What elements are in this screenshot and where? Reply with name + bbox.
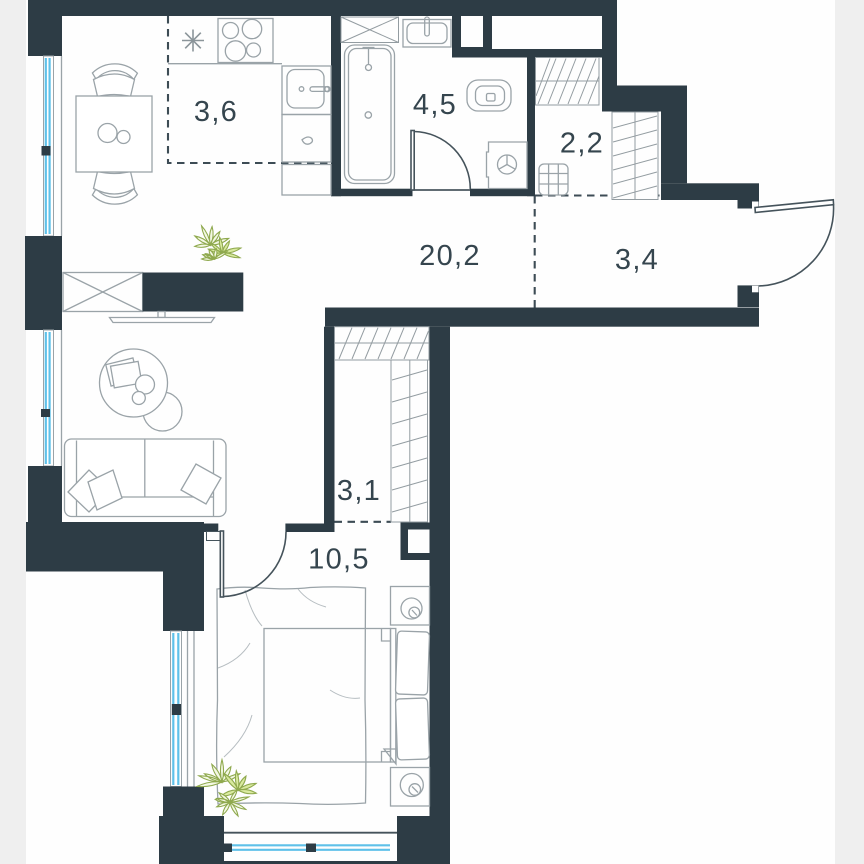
svg-text:3,4: 3,4 [615,244,659,276]
svg-text:20,2: 20,2 [419,240,481,272]
svg-text:3,6: 3,6 [194,96,238,128]
svg-text:3,1: 3,1 [337,475,381,507]
svg-text:4,5: 4,5 [413,89,457,121]
svg-text:2,2: 2,2 [560,128,604,160]
svg-text:10,5: 10,5 [308,544,370,576]
